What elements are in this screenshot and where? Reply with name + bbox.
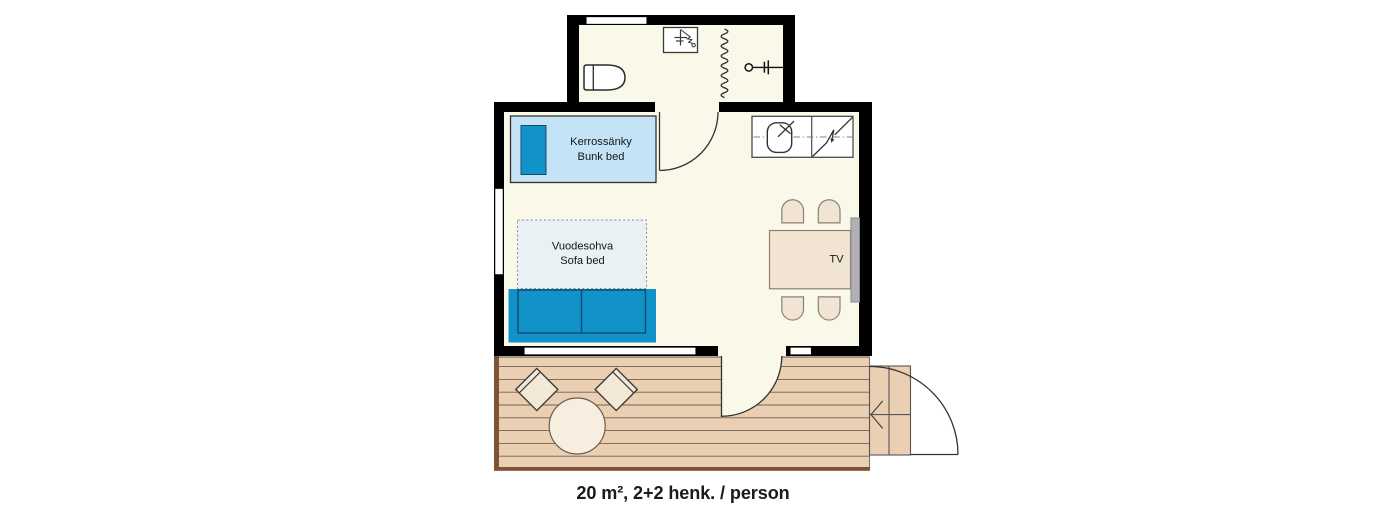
svg-text:Sofa bed: Sofa bed — [560, 255, 604, 267]
svg-text:20 m², 2+2 henk. / person: 20 m², 2+2 henk. / person — [576, 483, 789, 503]
svg-text:Vuodesohva: Vuodesohva — [552, 240, 614, 252]
svg-text:TV: TV — [829, 254, 844, 266]
svg-text:Bunk bed: Bunk bed — [578, 151, 625, 163]
svg-text:Kerrossänky: Kerrossänky — [570, 136, 632, 148]
